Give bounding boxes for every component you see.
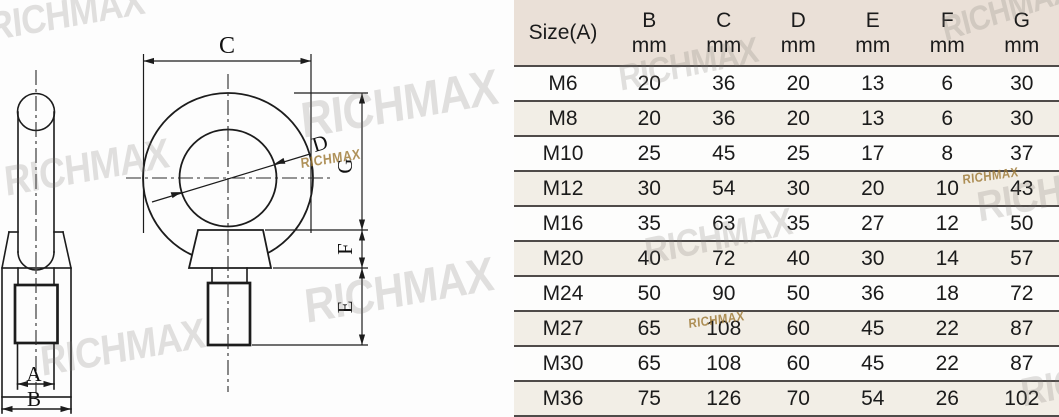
technical-drawing-area: C D G F E A B xyxy=(0,0,514,417)
table-cell: 13 xyxy=(836,102,911,135)
column-unit: mm xyxy=(781,33,816,58)
table-cell: 27 xyxy=(836,207,911,240)
dim-label-a: A xyxy=(26,362,42,386)
table-cell: 30 xyxy=(985,67,1059,100)
dim-label-b: B xyxy=(27,387,41,411)
table-row-m20: M20407240301457 xyxy=(514,242,1059,277)
table-cell: 45 xyxy=(687,137,762,170)
table-cell: 108 xyxy=(687,312,762,345)
table-cell: 30 xyxy=(836,242,911,275)
table-cell: 40 xyxy=(612,242,687,275)
column-header-d: Dmm xyxy=(761,0,836,65)
table-cell: 6 xyxy=(910,102,985,135)
table-cell: 75 xyxy=(612,382,687,415)
column-letter: D xyxy=(791,8,806,33)
table-cell: 30 xyxy=(761,172,836,205)
table-body: M620362013630M820362013630M1025452517837… xyxy=(514,67,1059,417)
table-cell: 13 xyxy=(836,67,911,100)
table-cell: 35 xyxy=(612,207,687,240)
eye-bolt-drawing: C D G F E A B xyxy=(0,0,514,417)
table-cell: 108 xyxy=(687,347,762,380)
table-cell: 126 xyxy=(687,382,762,415)
column-letter: G xyxy=(1014,8,1030,33)
table-cell: 72 xyxy=(687,242,762,275)
column-unit: mm xyxy=(930,33,965,58)
table-cell: 36 xyxy=(836,277,911,310)
row-size-label: M12 xyxy=(514,172,612,205)
table-row-m30: M306510860452287 xyxy=(514,347,1059,382)
column-header-e: Emm xyxy=(836,0,911,65)
table-row-m12: M12305430201043 xyxy=(514,172,1059,207)
column-unit: mm xyxy=(1004,33,1039,58)
threaded-shank xyxy=(208,283,250,345)
table-cell: 18 xyxy=(910,277,985,310)
table-cell: 57 xyxy=(985,242,1059,275)
collar-trapezoid xyxy=(189,230,271,268)
table-cell: 102 xyxy=(985,382,1059,415)
table-cell: 60 xyxy=(761,347,836,380)
size-column-header: Size(A) xyxy=(514,0,612,65)
table-cell: 45 xyxy=(836,347,911,380)
table-row-m6: M620362013630 xyxy=(514,67,1059,102)
row-size-label: M6 xyxy=(514,67,612,100)
column-unit: mm xyxy=(632,33,667,58)
row-size-label: M20 xyxy=(514,242,612,275)
table-cell: 20 xyxy=(612,67,687,100)
table-cell: 22 xyxy=(910,312,985,345)
row-size-label: M10 xyxy=(514,137,612,170)
row-size-label: M16 xyxy=(514,207,612,240)
table-cell: 36 xyxy=(687,102,762,135)
column-header-c: Cmm xyxy=(687,0,762,65)
table-cell: 50 xyxy=(761,277,836,310)
row-size-label: M27 xyxy=(514,312,612,345)
table-cell: 70 xyxy=(761,382,836,415)
table-cell: 30 xyxy=(612,172,687,205)
table-cell: 10 xyxy=(910,172,985,205)
table-cell: 8 xyxy=(910,137,985,170)
table-cell: 20 xyxy=(761,102,836,135)
column-letter: E xyxy=(866,8,880,33)
table-cell: 43 xyxy=(985,172,1059,205)
column-unit: mm xyxy=(855,33,890,58)
table-cell: 20 xyxy=(761,67,836,100)
table-row-m8: M820362013630 xyxy=(514,102,1059,137)
dim-label-d: D xyxy=(309,130,331,157)
column-letter: F xyxy=(941,8,954,33)
table-cell: 30 xyxy=(985,102,1059,135)
table-cell: 37 xyxy=(985,137,1059,170)
table-cell: 40 xyxy=(761,242,836,275)
table-cell: 12 xyxy=(910,207,985,240)
table-row-m16: M16356335271250 xyxy=(514,207,1059,242)
table-cell: 17 xyxy=(836,137,911,170)
table-cell: 26 xyxy=(910,382,985,415)
table-cell: 65 xyxy=(612,347,687,380)
column-letter: C xyxy=(716,8,731,33)
table-cell: 87 xyxy=(985,347,1059,380)
row-size-label: M8 xyxy=(514,102,612,135)
row-size-label: M24 xyxy=(514,277,612,310)
table-cell: 20 xyxy=(612,102,687,135)
table-cell: 90 xyxy=(687,277,762,310)
column-header-f: Fmm xyxy=(910,0,985,65)
table-cell: 36 xyxy=(687,67,762,100)
table-row-m24: M24509050361872 xyxy=(514,277,1059,312)
table-cell: 45 xyxy=(836,312,911,345)
column-letter: B xyxy=(642,8,656,33)
table-cell: 22 xyxy=(910,347,985,380)
table-header-row: Size(A) BmmCmmDmmEmmFmmGmm xyxy=(514,0,1059,67)
table-cell: 25 xyxy=(612,137,687,170)
table-row-m10: M1025452517837 xyxy=(514,137,1059,172)
table-cell: 54 xyxy=(687,172,762,205)
table-cell: 14 xyxy=(910,242,985,275)
table-cell: 65 xyxy=(612,312,687,345)
table-cell: 54 xyxy=(836,382,911,415)
table-cell: 25 xyxy=(761,137,836,170)
eye-bolt-datasheet: C D G F E A B Size(A) BmmCmmDmmEmmFmmGmm… xyxy=(0,0,1059,417)
column-header-b: Bmm xyxy=(612,0,687,65)
row-size-label: M36 xyxy=(514,382,612,415)
table-row-m36: M3675126705426102 xyxy=(514,382,1059,417)
table-cell: 6 xyxy=(910,67,985,100)
column-header-g: Gmm xyxy=(985,0,1059,65)
dim-label-g: G xyxy=(333,158,357,173)
dimension-labels: C D G F E A B xyxy=(26,33,357,411)
table-cell: 63 xyxy=(687,207,762,240)
dimension-table: Size(A) BmmCmmDmmEmmFmmGmm M620362013630… xyxy=(514,0,1059,417)
table-row-m27: M276510860452287 xyxy=(514,312,1059,347)
table-cell: 20 xyxy=(836,172,911,205)
table-cell: 35 xyxy=(761,207,836,240)
table-cell: 50 xyxy=(612,277,687,310)
table-cell: 60 xyxy=(761,312,836,345)
table-cell: 72 xyxy=(985,277,1059,310)
column-unit: mm xyxy=(706,33,741,58)
dim-label-f: F xyxy=(333,243,357,255)
dim-label-c: C xyxy=(219,33,235,59)
table-cell: 87 xyxy=(985,312,1059,345)
row-size-label: M30 xyxy=(514,347,612,380)
dim-label-e: E xyxy=(333,301,357,314)
table-cell: 50 xyxy=(985,207,1059,240)
